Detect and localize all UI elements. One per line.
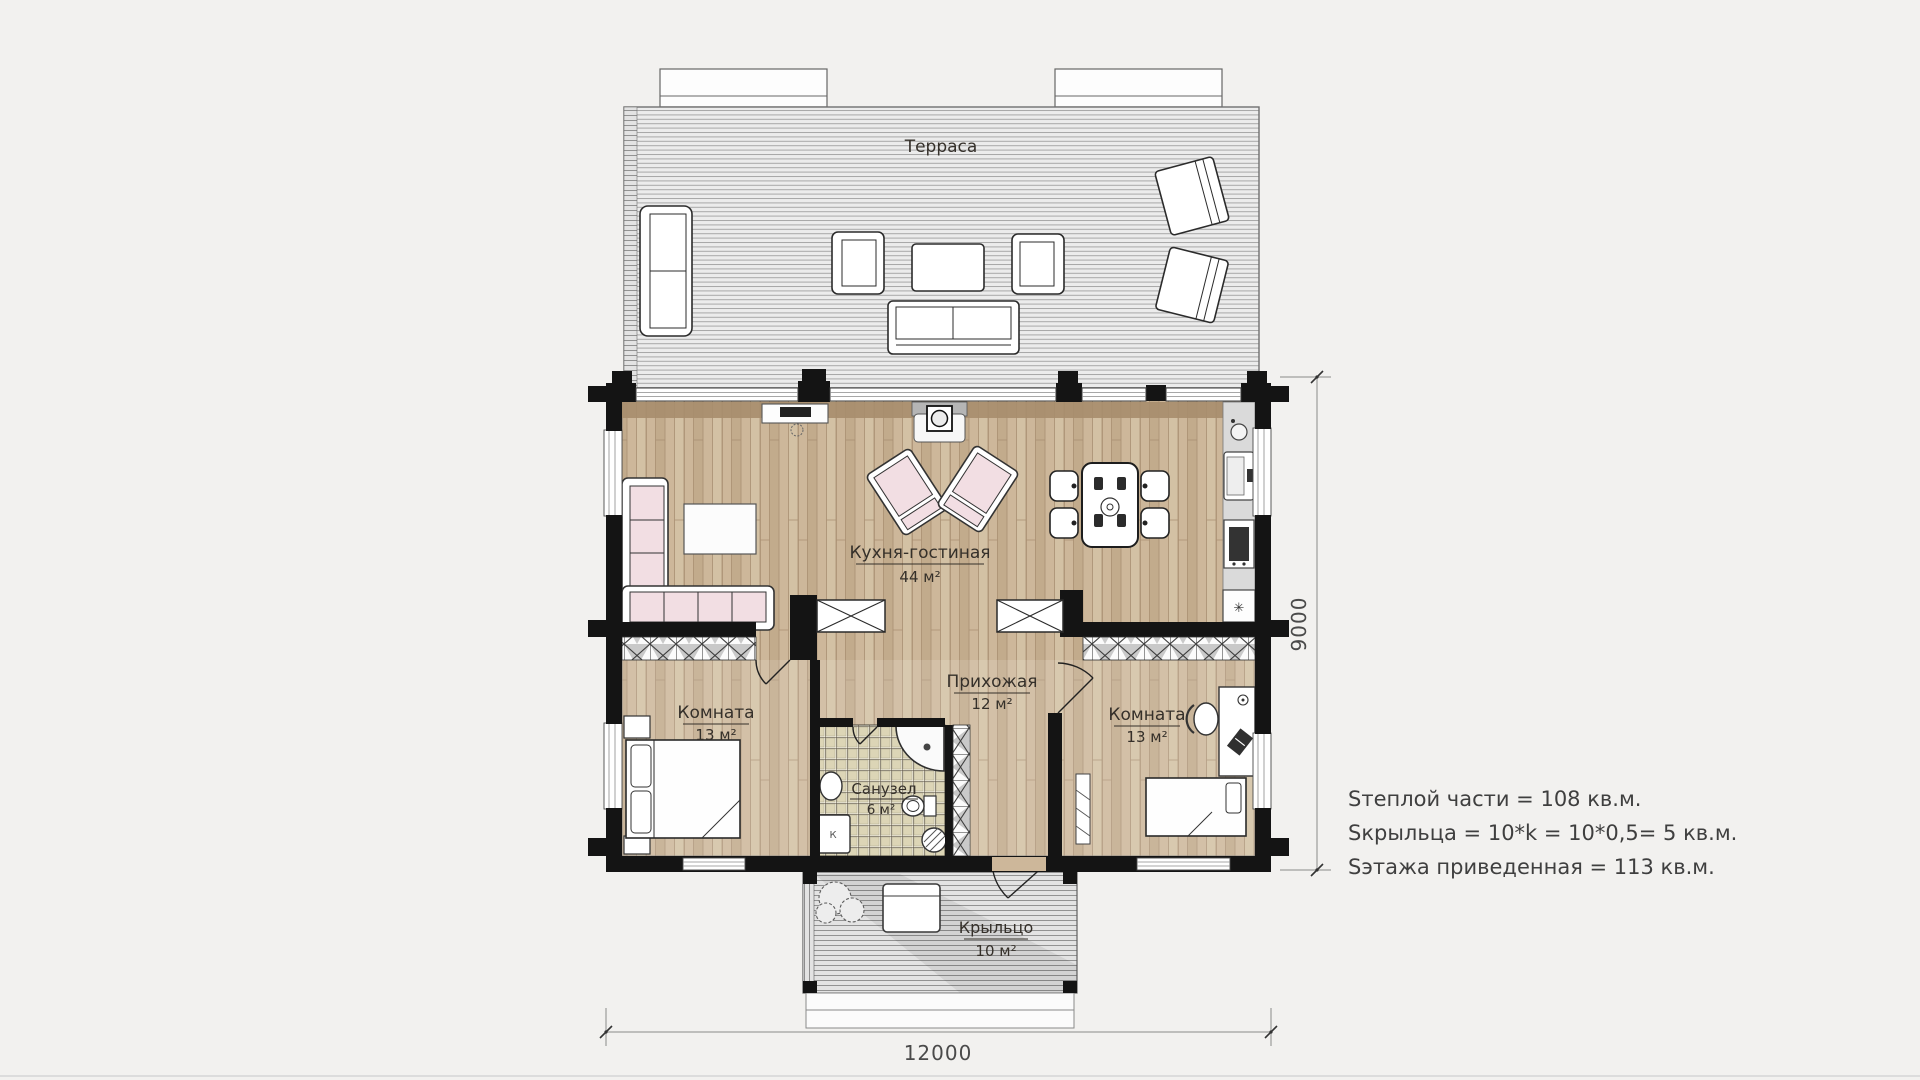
floor-plan-canvas: Терраса Крыльцо 10 м² [0, 0, 1920, 1080]
desk [1219, 687, 1255, 776]
note-porch-area: Sкрыльца = 10*k = 10*0,5= 5 кв.м. [1348, 821, 1737, 845]
window-bottom-right [1137, 858, 1230, 870]
note-total-area: Sэтажа приведенная = 113 кв.м. [1348, 855, 1715, 879]
terrace-label: Терраса [904, 137, 978, 157]
house: ✳ [588, 369, 1289, 898]
terrace-edge-trim [624, 107, 637, 388]
bathroom-area: 6 м² [867, 802, 895, 818]
single-bed [1146, 778, 1246, 836]
window-left-bedroom [604, 723, 622, 809]
kitchen-living-name: Кухня-гостиная [849, 543, 990, 563]
kitchen-stove [1224, 520, 1254, 568]
dimension-height-label: 9000 [1287, 597, 1311, 652]
tv [780, 407, 811, 417]
insulated-partition-left [622, 637, 756, 660]
terrace-armchair-right [1012, 234, 1064, 294]
water-heater [922, 828, 946, 852]
kitchen-living-area: 44 м² [899, 568, 940, 586]
washer-box-label: К [829, 830, 836, 841]
terrace-table [912, 244, 984, 291]
insulated-partition-bath [953, 725, 970, 856]
window-left-living [604, 430, 622, 516]
bedroom-left-area: 13 м² [695, 726, 736, 744]
nightstand-top [624, 716, 650, 738]
floor-plan-page: Терраса Крыльцо 10 м² [0, 0, 1920, 1080]
porch-step-1 [806, 993, 1074, 1010]
porch-label: Крыльцо [959, 918, 1033, 937]
bathroom-name: Санузел [851, 780, 916, 798]
terrace: Терраса [624, 69, 1259, 388]
window-bottom-left [683, 858, 745, 870]
roof-dormer-right [1055, 69, 1222, 107]
note-warm-area: Sтеплой части = 108 кв.м. [1348, 787, 1641, 811]
terrace-armchair-left [832, 232, 884, 294]
wood-stove [912, 402, 967, 442]
kitchen-counter: ✳ [1223, 402, 1255, 622]
porch-area: 10 м² [975, 942, 1016, 960]
terrace-sofa-left [640, 206, 692, 336]
hallway-name: Прихожая [946, 672, 1037, 692]
kitchen-sink [1224, 452, 1254, 500]
dimension-width-label: 12000 [904, 1041, 973, 1065]
washer-boiler-box: К [816, 815, 850, 853]
area-notes: Sтеплой части = 108 кв.м. Sкрыльца = 10*… [1348, 787, 1737, 879]
window-right-bedroom [1253, 733, 1271, 809]
porch-bench [883, 884, 940, 932]
fridge-snowflake-icon: ✳ [1234, 601, 1245, 616]
bedroom-left-name: Комната [677, 703, 754, 723]
bedroom-right-area: 13 м² [1126, 728, 1167, 746]
kitchen-fridge: ✳ [1223, 590, 1255, 622]
porch-step-2 [806, 1010, 1074, 1028]
roof-dormer-left [660, 69, 827, 107]
kitchen-small-sink [1231, 424, 1247, 440]
porch: Крыльцо 10 м² [803, 872, 1077, 1028]
double-bed [626, 740, 740, 838]
hallway-area: 12 м² [971, 695, 1012, 713]
dimension-height: 9000 [1280, 371, 1331, 876]
bedroom-right-name: Комната [1108, 705, 1185, 725]
coffee-table [684, 504, 756, 554]
terrace-sofa-center [888, 301, 1019, 354]
window-right-kitchen [1253, 428, 1271, 516]
insulated-partition-right [1083, 637, 1255, 660]
closet [1076, 774, 1090, 844]
entrance-opening [992, 857, 1046, 871]
